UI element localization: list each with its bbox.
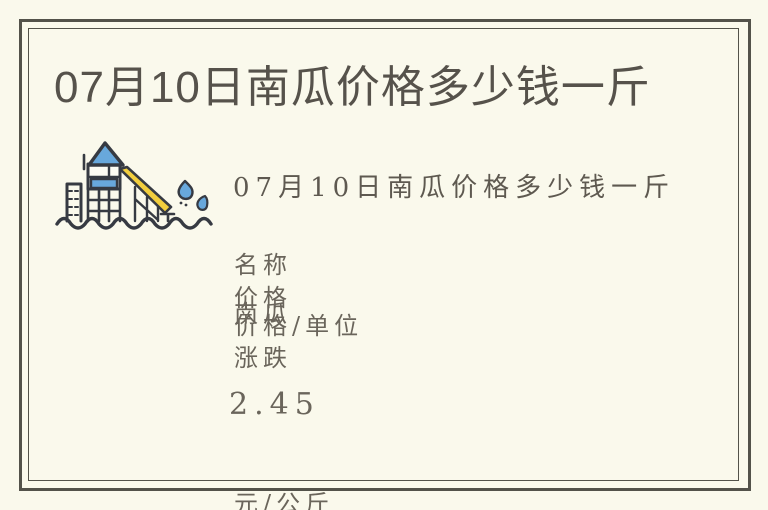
content-line-price-value: 2.45 [229,390,320,420]
content-line-unit-value: 元/公斤 [234,492,334,510]
water-slide-playground-icon [55,137,215,233]
hero-caption: 07月10日南瓜价格多少钱一斤 [233,167,675,204]
content-line-name-label: 名称 [234,253,292,277]
article-card: 07月10日南瓜价格多少钱一斤 [0,0,768,510]
page-title: 07月10日南瓜价格多少钱一斤 [54,62,714,115]
content-line-price-unit-label: 价格/单位 [234,314,363,338]
content-line-change-label: 涨跌 [234,346,292,370]
